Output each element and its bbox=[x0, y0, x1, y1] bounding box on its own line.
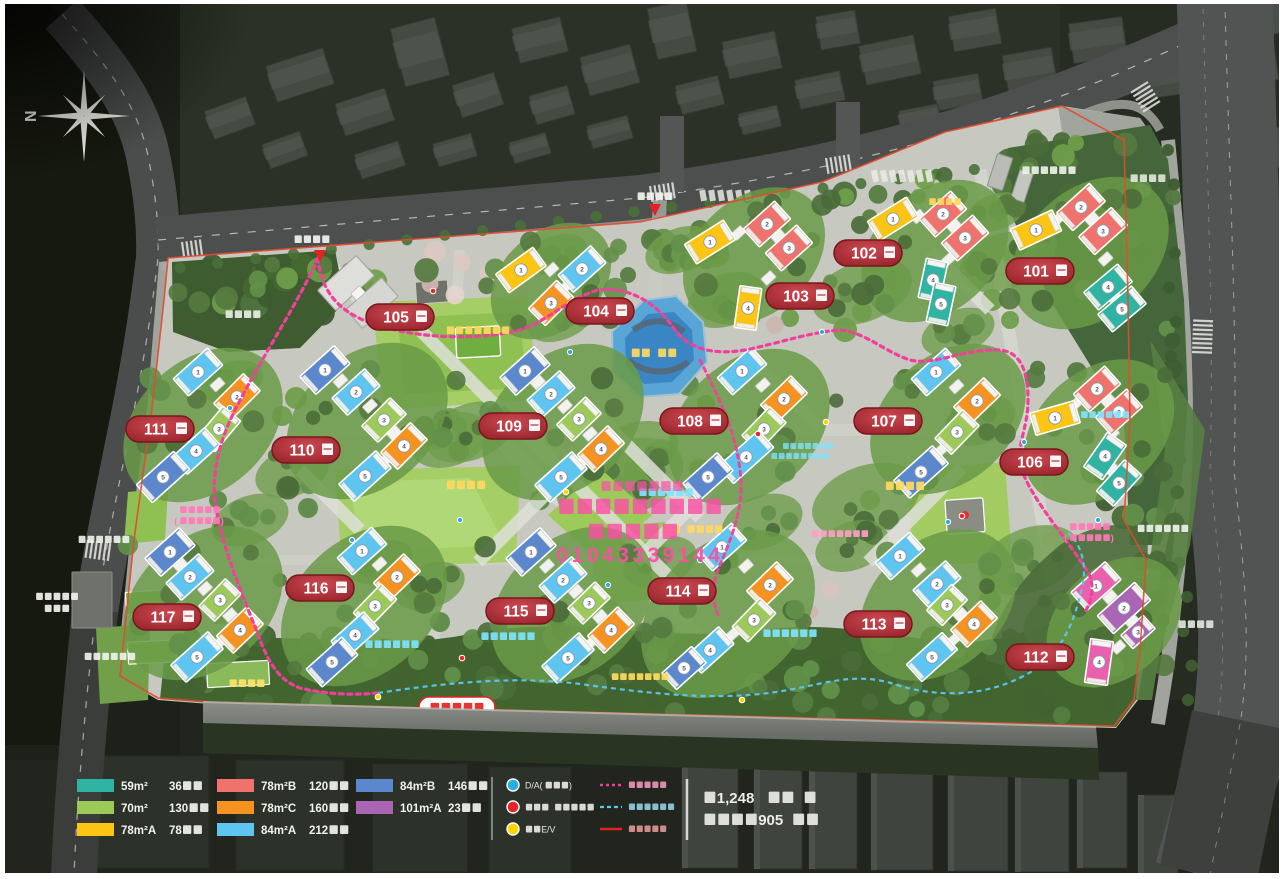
svg-text:5: 5 bbox=[930, 654, 934, 661]
svg-text:116: 116 bbox=[303, 581, 328, 598]
svg-text:78m²C: 78m²C bbox=[261, 803, 296, 815]
svg-text:2: 2 bbox=[1079, 204, 1083, 211]
svg-text:2: 2 bbox=[935, 581, 939, 588]
svg-text:2: 2 bbox=[561, 577, 565, 584]
svg-text:5: 5 bbox=[706, 474, 710, 481]
svg-text:120: 120 bbox=[309, 781, 328, 793]
svg-text:2: 2 bbox=[395, 574, 399, 581]
svg-text:4: 4 bbox=[972, 621, 976, 628]
svg-text:2: 2 bbox=[768, 582, 772, 589]
svg-text:1: 1 bbox=[360, 548, 364, 555]
svg-text:3: 3 bbox=[373, 603, 377, 610]
svg-text:113: 113 bbox=[861, 617, 886, 634]
svg-text:110: 110 bbox=[289, 443, 314, 460]
svg-text:1: 1 bbox=[196, 369, 200, 376]
svg-text:104: 104 bbox=[583, 304, 609, 321]
svg-text:2: 2 bbox=[1095, 386, 1099, 393]
svg-text:1: 1 bbox=[891, 216, 895, 223]
svg-text:E/V: E/V bbox=[541, 825, 555, 835]
svg-text:3: 3 bbox=[577, 416, 581, 423]
svg-text:905: 905 bbox=[758, 812, 783, 829]
svg-text:): ) bbox=[569, 781, 572, 791]
svg-text:3: 3 bbox=[787, 245, 791, 252]
svg-text:107: 107 bbox=[871, 414, 897, 431]
svg-text:4: 4 bbox=[609, 627, 613, 634]
svg-text:4: 4 bbox=[746, 305, 750, 312]
svg-text:109: 109 bbox=[496, 419, 522, 436]
svg-text:2: 2 bbox=[549, 391, 553, 398]
svg-text:2: 2 bbox=[1122, 605, 1126, 612]
svg-text:3: 3 bbox=[218, 597, 222, 604]
svg-text:70m²: 70m² bbox=[121, 803, 148, 815]
svg-text:3: 3 bbox=[752, 617, 756, 624]
svg-text:101: 101 bbox=[1023, 264, 1049, 281]
svg-text:4: 4 bbox=[1097, 659, 1101, 666]
svg-text:1: 1 bbox=[168, 549, 172, 556]
svg-text:3: 3 bbox=[587, 600, 591, 607]
svg-text:4: 4 bbox=[402, 443, 406, 450]
svg-text:212: 212 bbox=[309, 825, 328, 837]
svg-text:4: 4 bbox=[1106, 284, 1110, 291]
svg-text:78: 78 bbox=[169, 825, 182, 837]
svg-text:1: 1 bbox=[323, 367, 327, 374]
svg-text:115: 115 bbox=[503, 604, 528, 621]
svg-text:2: 2 bbox=[941, 211, 945, 218]
svg-text:130: 130 bbox=[169, 803, 188, 815]
svg-text:5: 5 bbox=[559, 474, 563, 481]
svg-text:3: 3 bbox=[762, 426, 766, 433]
svg-text:): ) bbox=[1111, 533, 1114, 543]
svg-text:117: 117 bbox=[150, 610, 175, 627]
svg-text:3: 3 bbox=[1136, 629, 1140, 636]
svg-text:): ) bbox=[221, 516, 224, 526]
svg-text:5: 5 bbox=[682, 665, 686, 672]
svg-text:2: 2 bbox=[580, 266, 584, 273]
svg-text:4: 4 bbox=[708, 647, 712, 654]
svg-text:3: 3 bbox=[945, 602, 949, 609]
svg-text:2: 2 bbox=[188, 574, 192, 581]
svg-text:3: 3 bbox=[955, 429, 959, 436]
svg-text:5: 5 bbox=[939, 301, 943, 308]
svg-text:101m²A: 101m²A bbox=[400, 803, 442, 815]
svg-text:112: 112 bbox=[1023, 650, 1048, 667]
svg-text:1: 1 bbox=[1094, 583, 1098, 590]
svg-text:84m²B: 84m²B bbox=[400, 781, 435, 793]
svg-text:146: 146 bbox=[448, 781, 467, 793]
svg-text:1: 1 bbox=[1034, 227, 1038, 234]
svg-text:1: 1 bbox=[708, 239, 712, 246]
svg-text:108: 108 bbox=[677, 414, 703, 431]
svg-text:78m²B: 78m²B bbox=[261, 781, 296, 793]
svg-text:111: 111 bbox=[144, 422, 169, 439]
svg-text:4: 4 bbox=[599, 446, 603, 453]
svg-text:4: 4 bbox=[744, 454, 748, 461]
svg-text:2: 2 bbox=[765, 221, 769, 228]
svg-text:5: 5 bbox=[363, 473, 367, 480]
svg-text:4: 4 bbox=[194, 448, 198, 455]
svg-text:2: 2 bbox=[975, 398, 979, 405]
svg-text:160: 160 bbox=[309, 803, 328, 815]
svg-text:84m²A: 84m²A bbox=[261, 825, 296, 837]
svg-text:4: 4 bbox=[1103, 453, 1107, 460]
svg-text:5: 5 bbox=[1120, 306, 1124, 313]
svg-text:5: 5 bbox=[330, 659, 334, 666]
svg-text:3: 3 bbox=[1101, 228, 1105, 235]
svg-text:1: 1 bbox=[740, 368, 744, 375]
svg-text:1: 1 bbox=[529, 549, 533, 556]
svg-text:103: 103 bbox=[783, 289, 809, 306]
svg-text:59m²: 59m² bbox=[121, 781, 148, 793]
svg-text:D/A(: D/A( bbox=[525, 781, 543, 791]
svg-text:5: 5 bbox=[161, 474, 165, 481]
svg-text:3: 3 bbox=[217, 426, 221, 433]
svg-text:1: 1 bbox=[1053, 415, 1057, 422]
svg-text:5: 5 bbox=[919, 469, 923, 476]
svg-text:(: ( bbox=[1064, 533, 1067, 543]
svg-text:1: 1 bbox=[934, 369, 938, 376]
svg-text:4: 4 bbox=[353, 632, 357, 639]
svg-text:78m²A: 78m²A bbox=[121, 825, 156, 837]
svg-text:3: 3 bbox=[382, 417, 386, 424]
svg-text:01043339144: 01043339144 bbox=[557, 544, 724, 567]
svg-text:1,248: 1,248 bbox=[717, 790, 755, 807]
svg-text:102: 102 bbox=[851, 246, 877, 263]
svg-text:36: 36 bbox=[169, 781, 182, 793]
svg-text:5: 5 bbox=[1117, 480, 1121, 487]
svg-text:3: 3 bbox=[549, 300, 553, 307]
svg-text:4: 4 bbox=[238, 627, 242, 634]
svg-text:105: 105 bbox=[383, 310, 409, 327]
svg-text:2: 2 bbox=[782, 396, 786, 403]
svg-text:1: 1 bbox=[519, 267, 523, 274]
svg-text:106: 106 bbox=[1017, 455, 1043, 472]
svg-text:1: 1 bbox=[898, 553, 902, 560]
svg-text:5: 5 bbox=[566, 655, 570, 662]
svg-text:23: 23 bbox=[448, 803, 461, 815]
svg-text:(: ( bbox=[174, 516, 177, 526]
svg-text:114: 114 bbox=[665, 584, 690, 601]
svg-text:5: 5 bbox=[195, 654, 199, 661]
svg-text:3: 3 bbox=[963, 235, 967, 242]
svg-text:1: 1 bbox=[523, 368, 527, 375]
svg-text:2: 2 bbox=[354, 389, 358, 396]
